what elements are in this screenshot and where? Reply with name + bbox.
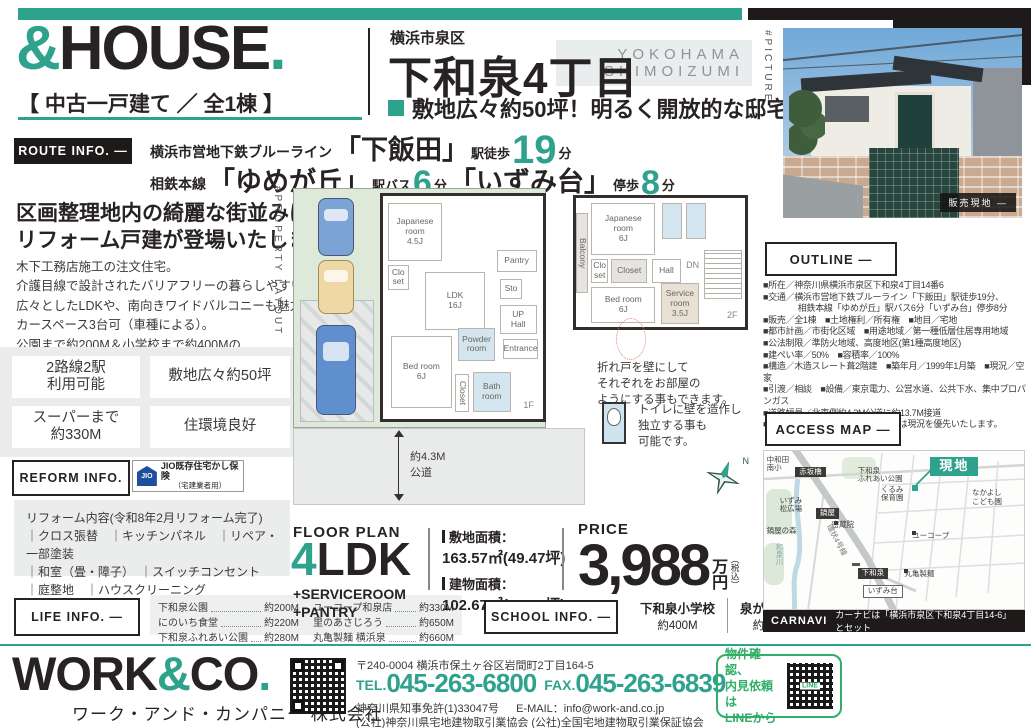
school-item: 下和泉小学校約400M [628,598,727,633]
room-label: Clo set [591,259,608,284]
note1-highlight [616,318,646,360]
brand-subtitle: 【 中古一戸建て ／ 全1棟 】 [18,88,284,118]
line-note: 物件確認、 内見依頼は LINEから [725,646,781,727]
road-dim-arrow-up [394,430,404,437]
room-label: Powder room [458,328,495,361]
map-label: 和泉川 [774,543,783,566]
car-blue-2 [316,325,356,415]
outline-row: ■構造／木造スレート葺2階建 ■築年月／1999年1月築 ■現況／空家 [763,361,1031,384]
room-label: Pantry [497,250,537,272]
life-item-name: 下和泉公園 [158,599,208,614]
outline-row: ■建ぺい率／50% ■容積率／100% [763,350,1031,362]
map-label: 下和泉 ふれあい公園 [858,467,903,484]
feature-grid: 2路線2駅 利用可能敷地広々約50坪スーパーまで 約330M住環境良好 [12,356,290,448]
price-unit-bottom: 円 [712,576,728,593]
outline-row: ■引渡／相談 ■設備／東京電力、公営水道、公共下水、集中プロパンガス [763,384,1031,407]
room-label: 1F [517,397,539,415]
jio-sub: （宅建業者用） [174,482,227,490]
road-note: 約4.3M 公道 [410,448,445,480]
ldk-line: 4LDK [291,536,411,582]
map-label: いずみ 松広場 [780,497,803,514]
room-label [662,203,682,239]
room-label: DN [684,259,701,272]
room-label: Sto [500,279,522,299]
reform-panel: リフォーム内容(令和8年2月リフォーム完了) ｜クロス張替 ｜キッチンパネル ｜… [14,500,290,576]
company-qr-code [290,658,346,714]
outline-rows: ■所在／神奈川県横浜市泉区下和泉4丁目14番6■交通／横浜市営地下鉄ブルーライン… [763,280,1031,431]
reform-lines: ｜クロス張替 ｜キッチンパネル ｜リペア・一部塗装｜和室（畳・障子） ｜スイッチ… [26,527,278,599]
road-dim-arrow-down [394,494,404,501]
life-item-name: 下和泉ふれあい公園 [158,629,248,644]
map-label: 赤坂橋 [795,467,826,478]
price-block: PRICE 3,988 万 円 （税込） [578,521,741,593]
brand-underline [18,117,362,120]
feature-box: 敷地広々約50坪 [150,356,290,398]
fax-number: 045-263-6839 [575,670,725,696]
reform-item-line: ｜クロス張替 ｜キッチンパネル ｜リペア・一部塗装 [26,527,278,563]
access-map-label: ACCESS MAP — [765,412,901,446]
room-label [704,250,741,299]
room-label: Closet [611,259,646,284]
outline-row: 相鉄本線「ゆめが丘」駅バス6分「いずみ台」停歩8分 [763,303,1031,315]
leader-dots [386,626,416,627]
summary-divider-1 [428,528,430,590]
price-unit-top: 万 [712,560,728,577]
summary-divider-2 [562,528,564,590]
price-tax: （税込） [729,555,741,593]
leader-dots [251,641,261,642]
header-divider [368,28,370,115]
feature-box: 住環境良好 [150,406,290,448]
map-label: いずみ台 [863,585,903,598]
property-layout-tag: #PROPERTY LAYOUT [272,186,283,336]
line-qr-label: LINE [800,683,820,690]
car-yellow [318,260,354,314]
life-info-label: LIFE INFO. — [14,598,140,636]
map-label: 丸亀製麺 [904,570,934,579]
photo-badge: 販売現地 — [940,193,1016,212]
outline-row: ■交通／横浜市営地下鉄ブルーライン「下飯田」駅徒歩19分、 [763,292,1031,304]
toilet-icon [602,402,626,444]
room-label: Entrance [503,339,538,359]
company-logo-ampersand: & [157,647,190,700]
school-name: 下和泉小学校 [640,598,715,617]
room-label: UP Hall [500,305,537,334]
outline-row: ■販売／全1棟 ■土地権利／所有権 ■地目／宅地 [763,315,1031,327]
life-item-name: にのいち食堂 [158,614,218,629]
school-info-label: SCHOOL INFO. — [484,600,618,634]
line-qr-code: LINE [787,663,833,709]
room-label: Clo set [388,265,409,290]
company-logo-p1: WORK [12,647,157,700]
life-item-name: 丸亀製麺 横浜泉 [313,629,386,644]
property-photo: 販売現地 — [783,28,1022,218]
route2-prefix: 相鉄本線 [150,174,206,199]
compass-icon: N [705,460,741,501]
room-label: Japanese room 4.5J [388,203,442,261]
reform-title: リフォーム内容(令和8年2月リフォーム完了) [26,509,278,527]
map-label: 現地 [930,457,978,476]
footer-contact: TEL. 045-263-6800 FAX. 045-263-6839 [356,670,725,696]
map-label: 下和泉 [858,568,889,579]
carnavi-label: CARNAVI [771,615,827,627]
feature-box: 2路線2駅 利用可能 [12,356,140,398]
tel-label: TEL. [356,677,386,696]
leader-dots [389,641,416,642]
building-area-label: 建物面積： [449,574,514,593]
land-area-label: 敷地面積： [449,527,514,546]
life-item: 下和泉公園約200M [158,599,299,614]
land-area-value: 163.57㎡(49.47坪) [442,547,565,568]
floorplan-1f: Japanese room 4.5JClo setLDK 16JPantrySt… [380,193,546,422]
map-label: ユーコープ [912,532,949,541]
life-item: 下和泉ふれあい公園約280M [158,629,299,644]
outline-row: ■所在／神奈川県横浜市泉区下和泉4丁目14番6 [763,280,1031,292]
room-label: LDK 16J [425,272,486,330]
school-distance: 約400M [640,617,715,633]
reform-item-line: ｜和室（畳・障子） ｜スイッチコンセント [26,563,278,581]
room-label: 2F [721,309,743,322]
room-label: Japanese room 6J [591,203,655,255]
room-label: Closet [455,374,469,412]
line-contact-box: 物件確認、 内見依頼は LINEから LINE [716,654,842,718]
life-item-distance: 約660M [419,629,454,644]
brand-logo: &HOUSE. [16,18,285,80]
life-item-distance: 約650M [419,614,454,629]
photo-window-shutter [825,96,869,122]
room-label: Hall [652,259,681,284]
feature-box: スーパーまで 約330M [12,406,140,448]
leader-dots [211,611,261,612]
ldk-plus: +SERVICEROOM +PANTRY [293,586,406,621]
company-logo: WORK&CO. [12,650,270,697]
leader-dots [221,626,261,627]
jio-badge: JIO JIO既存住宅かし保険 （宅建業者用） [132,460,244,492]
brand-name: HOUSE [59,14,269,83]
tel-number: 045-263-6800 [386,670,536,696]
map-label: なかよし こども園 [972,489,1002,506]
room-label: Service room 3.5J [661,283,700,324]
room-label: Bath room [473,372,511,412]
life-item-distance: 約280M [264,629,299,644]
room-label: Balcony [576,213,588,293]
outline-label: OUTLINE — [765,242,897,276]
access-map: 中和田 南小赤坂橋下和泉 ふれあい公園くるみ 保育園現地なかよし こども園いずみ… [763,450,1025,610]
ldk-number: 4 [291,533,317,585]
toilet-note: トイレに壁を造作し 独立する事も 可能です。 [638,402,742,450]
flyer-page: &HOUSE. 【 中古一戸建て ／ 全1棟 】 横浜市泉区 下和泉4丁目 YO… [0,0,1031,728]
jio-title: JIO既存住宅かし保険 [161,462,239,482]
photo-tree [789,88,825,156]
area-large: 下和泉4丁目 [388,42,638,106]
price-value: 3,988 [578,538,708,593]
room-label: Bed room 6J [591,287,655,323]
map-label: 中和田 南小 [767,456,790,473]
fax-label: FAX. [536,677,575,696]
outline-row: ■都市計画／市街化区域 ■用途地域／第一種低層住居専用地域 [763,326,1031,338]
car-blue-1 [318,198,354,256]
route-info-label: ROUTE INFO. — [14,138,132,164]
outline-row: ■公法制限／準防火地域、高度地区(第1種高度地区) [763,338,1031,350]
map-label: 鍋屋の森 [767,527,797,536]
footer-associations: (公社)神奈川県宅地建物取引業協会 (公社)全国宅地建物取引業保証協会 [356,714,704,728]
compass-n-label: N [743,456,750,466]
jio-house-icon: JIO [137,466,157,486]
room-label [686,203,706,239]
road-dim-line [398,432,399,500]
footer-divider [0,644,1031,646]
map-label: くるみ 保育園 [881,486,904,503]
brand-ampersand: & [16,14,59,83]
room-label: Bed room 6J [391,336,452,407]
map-label: 鍋屋 [816,508,839,519]
life-item: にのいち食堂約220M [158,614,299,629]
company-logo-p2: CO [190,647,259,700]
carnavi-bar: CARNAVI カーナビは「横浜市泉区下和泉4丁目14-6」とセット [763,610,1025,632]
carnavi-text: カーナビは「横浜市泉区下和泉4丁目14-6」とセット [835,608,1017,634]
company-logo-dot: . [258,647,270,700]
picture-tag: #PICTURE [762,30,773,103]
reform-info-label: REFORM INFO. [12,460,130,496]
floorplan-2f: BalconyJapanese room 6JClo setClosetHall… [573,195,748,330]
life-item: 丸亀製麺 横浜泉約660M [313,629,454,644]
ldk-suffix: LDK [317,533,412,585]
brand-dot: . [269,14,284,83]
